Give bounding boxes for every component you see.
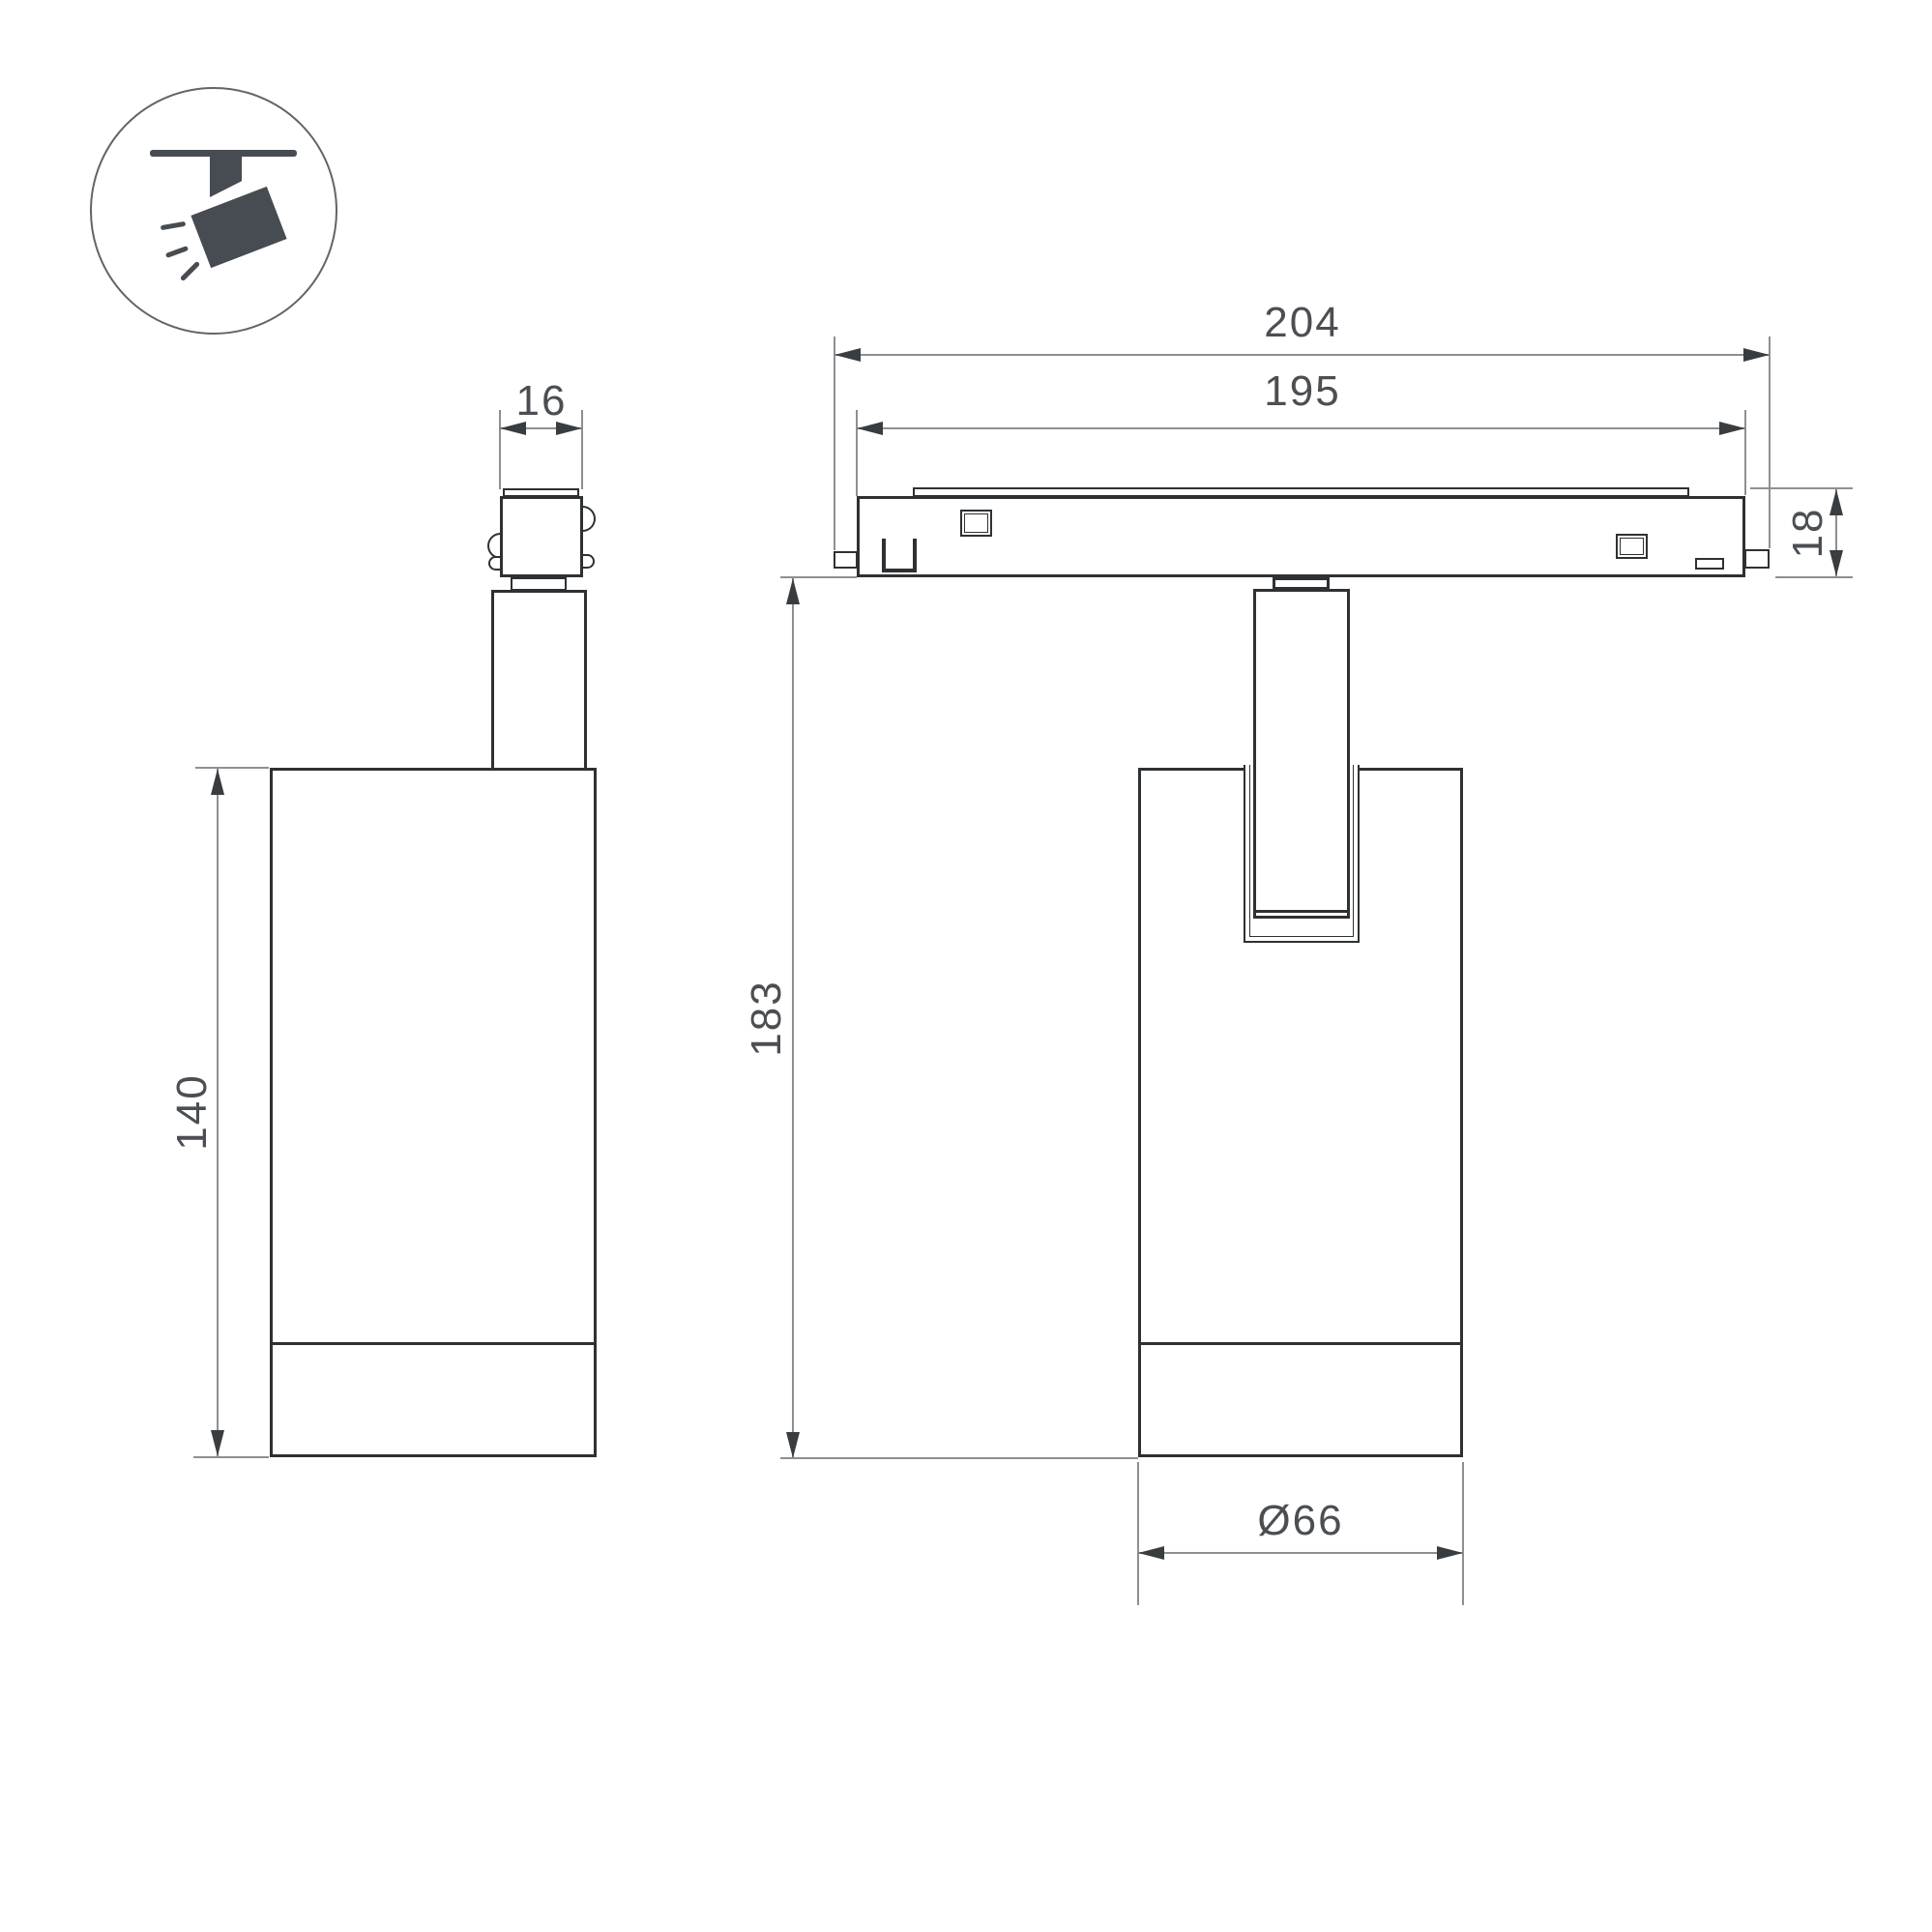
arrowhead-up — [786, 578, 800, 604]
extension-line — [1775, 576, 1853, 578]
extension-line — [1137, 1462, 1139, 1605]
track-clip — [882, 539, 917, 572]
dimension-label-track-outer: 204 — [1264, 302, 1340, 344]
dimension-label-overall-height: 183 — [746, 980, 788, 1056]
dimension-line — [834, 354, 1770, 356]
extension-line — [834, 337, 835, 550]
dimension-line — [1138, 1552, 1463, 1554]
dimension-label-track-height: 18 — [1787, 508, 1830, 559]
track-contact-block-inner — [964, 513, 988, 533]
front-view-body-divider — [1141, 1342, 1460, 1345]
extension-line — [1769, 337, 1771, 548]
track-end-tab — [834, 551, 858, 569]
arrowhead-right — [1719, 422, 1745, 435]
dimension-label-body-diameter: Ø66 — [1257, 1500, 1343, 1542]
arrowhead-up — [1830, 489, 1843, 515]
front-view-pivot-collar — [1273, 577, 1330, 590]
arrowhead-right — [1437, 1546, 1463, 1560]
front-view: 204 195 18 183 Ø66 — [0, 0, 1932, 1932]
track-profile — [857, 496, 1745, 577]
dimension-line — [857, 427, 1745, 429]
front-view-stem — [1253, 589, 1350, 919]
arrowhead-down — [786, 1432, 800, 1458]
arrowhead-left — [834, 348, 861, 362]
dimension-label-track-inner: 195 — [1264, 370, 1340, 413]
arrowhead-down — [1830, 550, 1843, 576]
track-slot-opening — [1695, 558, 1724, 570]
arrowhead-left — [1138, 1546, 1164, 1560]
extension-line — [1462, 1462, 1464, 1605]
technical-drawing-canvas: 16 140 20 — [0, 0, 1932, 1932]
front-view-stem-end-line — [1256, 910, 1347, 913]
dimension-line — [792, 578, 794, 1458]
track-contact-block-inner — [1620, 538, 1644, 555]
extension-line — [780, 1457, 1138, 1459]
arrowhead-left — [857, 422, 883, 435]
arrowhead-right — [1743, 348, 1770, 362]
track-end-tab — [1744, 549, 1770, 569]
